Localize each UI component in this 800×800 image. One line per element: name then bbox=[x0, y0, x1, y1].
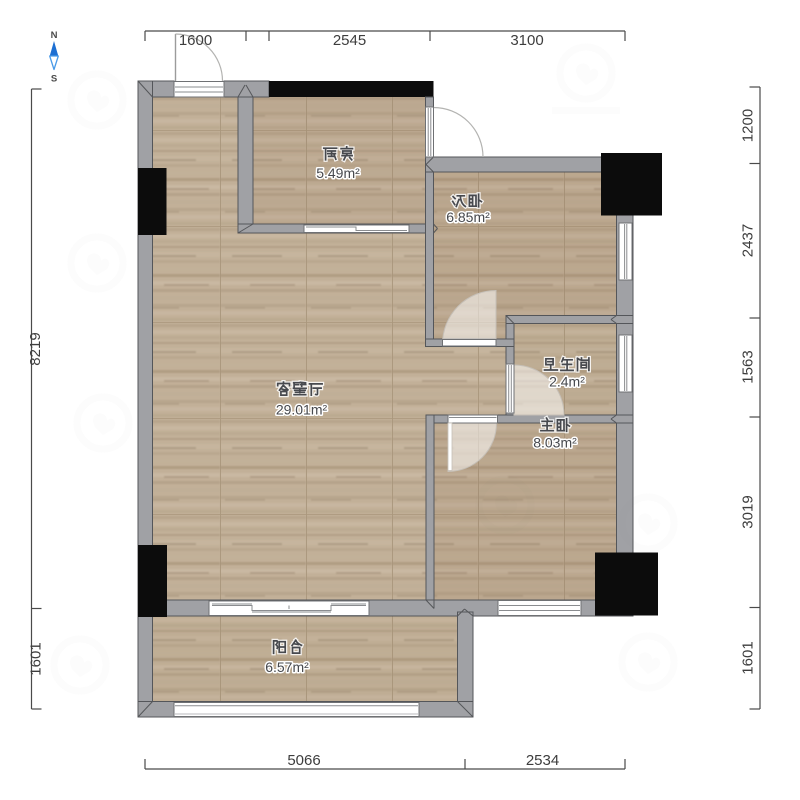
svg-text:2545: 2545 bbox=[333, 32, 366, 49]
svg-text:N: N bbox=[51, 30, 58, 41]
svg-text:2.4m²: 2.4m² bbox=[549, 374, 585, 390]
svg-text:6.57m²: 6.57m² bbox=[265, 659, 309, 675]
svg-text:5.49m²: 5.49m² bbox=[316, 165, 360, 181]
svg-text:1200: 1200 bbox=[740, 109, 757, 142]
svg-text:8219: 8219 bbox=[27, 332, 44, 365]
svg-text:5066: 5066 bbox=[287, 752, 320, 769]
svg-text:29.01m²: 29.01m² bbox=[276, 402, 328, 418]
svg-text:3100: 3100 bbox=[510, 32, 543, 49]
svg-text:3019: 3019 bbox=[740, 495, 757, 528]
svg-text:2437: 2437 bbox=[740, 224, 757, 257]
svg-text:2534: 2534 bbox=[526, 752, 559, 769]
svg-text:1563: 1563 bbox=[740, 350, 757, 383]
svg-text:1601: 1601 bbox=[740, 641, 757, 674]
svg-text:1600: 1600 bbox=[179, 32, 212, 49]
svg-text:8.03m²: 8.03m² bbox=[533, 435, 577, 451]
svg-text:6.85m²: 6.85m² bbox=[446, 209, 490, 225]
svg-text:S: S bbox=[51, 74, 57, 85]
svg-text:1601: 1601 bbox=[28, 642, 45, 675]
